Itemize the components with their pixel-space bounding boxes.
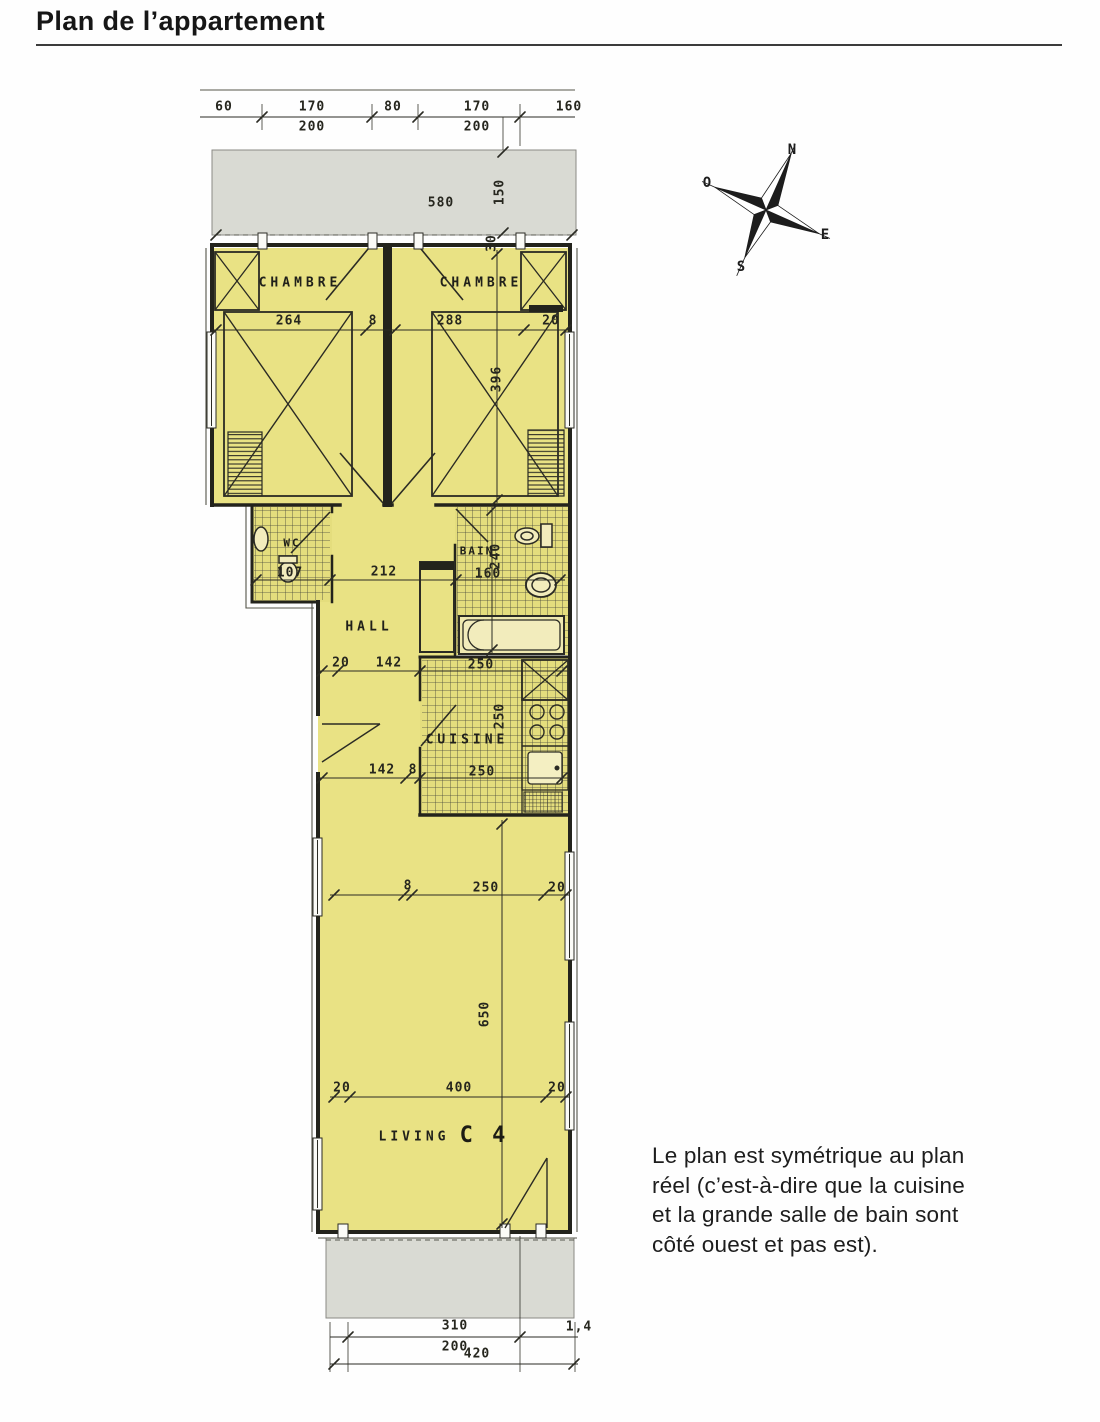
dimension-label: 250	[473, 882, 499, 895]
dimension-label: 150	[494, 179, 507, 205]
dimension-label: 310	[442, 1320, 468, 1333]
radiator-right	[528, 430, 564, 496]
dimension-label: 20	[333, 1082, 351, 1095]
room-label-bain: BAIN	[460, 546, 495, 557]
dimension-label: 8	[404, 880, 413, 893]
dimension-label: 400	[446, 1082, 472, 1095]
room-label-wc: WC	[283, 538, 300, 549]
dimension-label: 30	[486, 234, 499, 252]
dimension-label: 170	[299, 101, 325, 114]
dimension-label: 264	[276, 315, 302, 328]
balcony-top	[212, 150, 576, 235]
room-label-chambre-right: CHAMBRE	[440, 277, 523, 290]
dimension-label: 107	[277, 567, 303, 580]
dimension-label: 160	[475, 568, 501, 581]
dimension-label: 60	[215, 101, 233, 114]
dimension-label: 160	[556, 101, 582, 114]
balcony-bottom	[326, 1238, 574, 1318]
page: Plan de l’appartement	[0, 0, 1100, 1422]
dimension-label: 20	[548, 882, 566, 895]
dimension-label: 200	[464, 121, 490, 134]
compass-direction-s: S	[737, 260, 745, 274]
compass-direction-o: O	[703, 176, 711, 190]
dimension-label: 250	[469, 766, 495, 779]
caption-text: Le plan est symétrique au plan réel (c’e…	[652, 1141, 988, 1259]
compass-icon	[673, 116, 859, 304]
dimension-label: 142	[369, 764, 395, 777]
dimension-label: 20	[542, 315, 560, 328]
dimension-label: 212	[371, 566, 397, 579]
dimension-label: 80	[384, 101, 402, 114]
compass-direction-n: N	[788, 143, 796, 157]
apartment-unit-label: C 4	[460, 1125, 509, 1147]
dimension-label: 420	[464, 1348, 490, 1361]
dimension-label: 8	[409, 764, 418, 777]
radiator-left	[228, 432, 262, 496]
room-label-hall: HALL	[345, 621, 392, 634]
dimension-label: 580	[428, 197, 454, 210]
dimension-label: 142	[376, 657, 402, 670]
hall-closet	[420, 562, 454, 652]
room-label-chambre-left: CHAMBRE	[259, 277, 342, 290]
dimension-label: 650	[479, 1001, 492, 1027]
dimension-label: 20	[332, 657, 350, 670]
dimension-label: 20	[548, 1082, 566, 1095]
dimension-label: 1,4	[566, 1321, 592, 1334]
dimension-label: 8	[369, 315, 378, 328]
dimension-label: 250	[494, 703, 507, 729]
room-label-living: LIVING	[379, 1131, 450, 1144]
dimension-label: 396	[491, 366, 504, 392]
dimension-label: 200	[299, 121, 325, 134]
dimension-label: 250	[468, 659, 494, 672]
compass-direction-e: E	[821, 228, 829, 242]
room-label-cuisine: CUISINE	[426, 734, 509, 747]
dimension-label: 170	[464, 101, 490, 114]
dimension-label: 288	[437, 315, 463, 328]
